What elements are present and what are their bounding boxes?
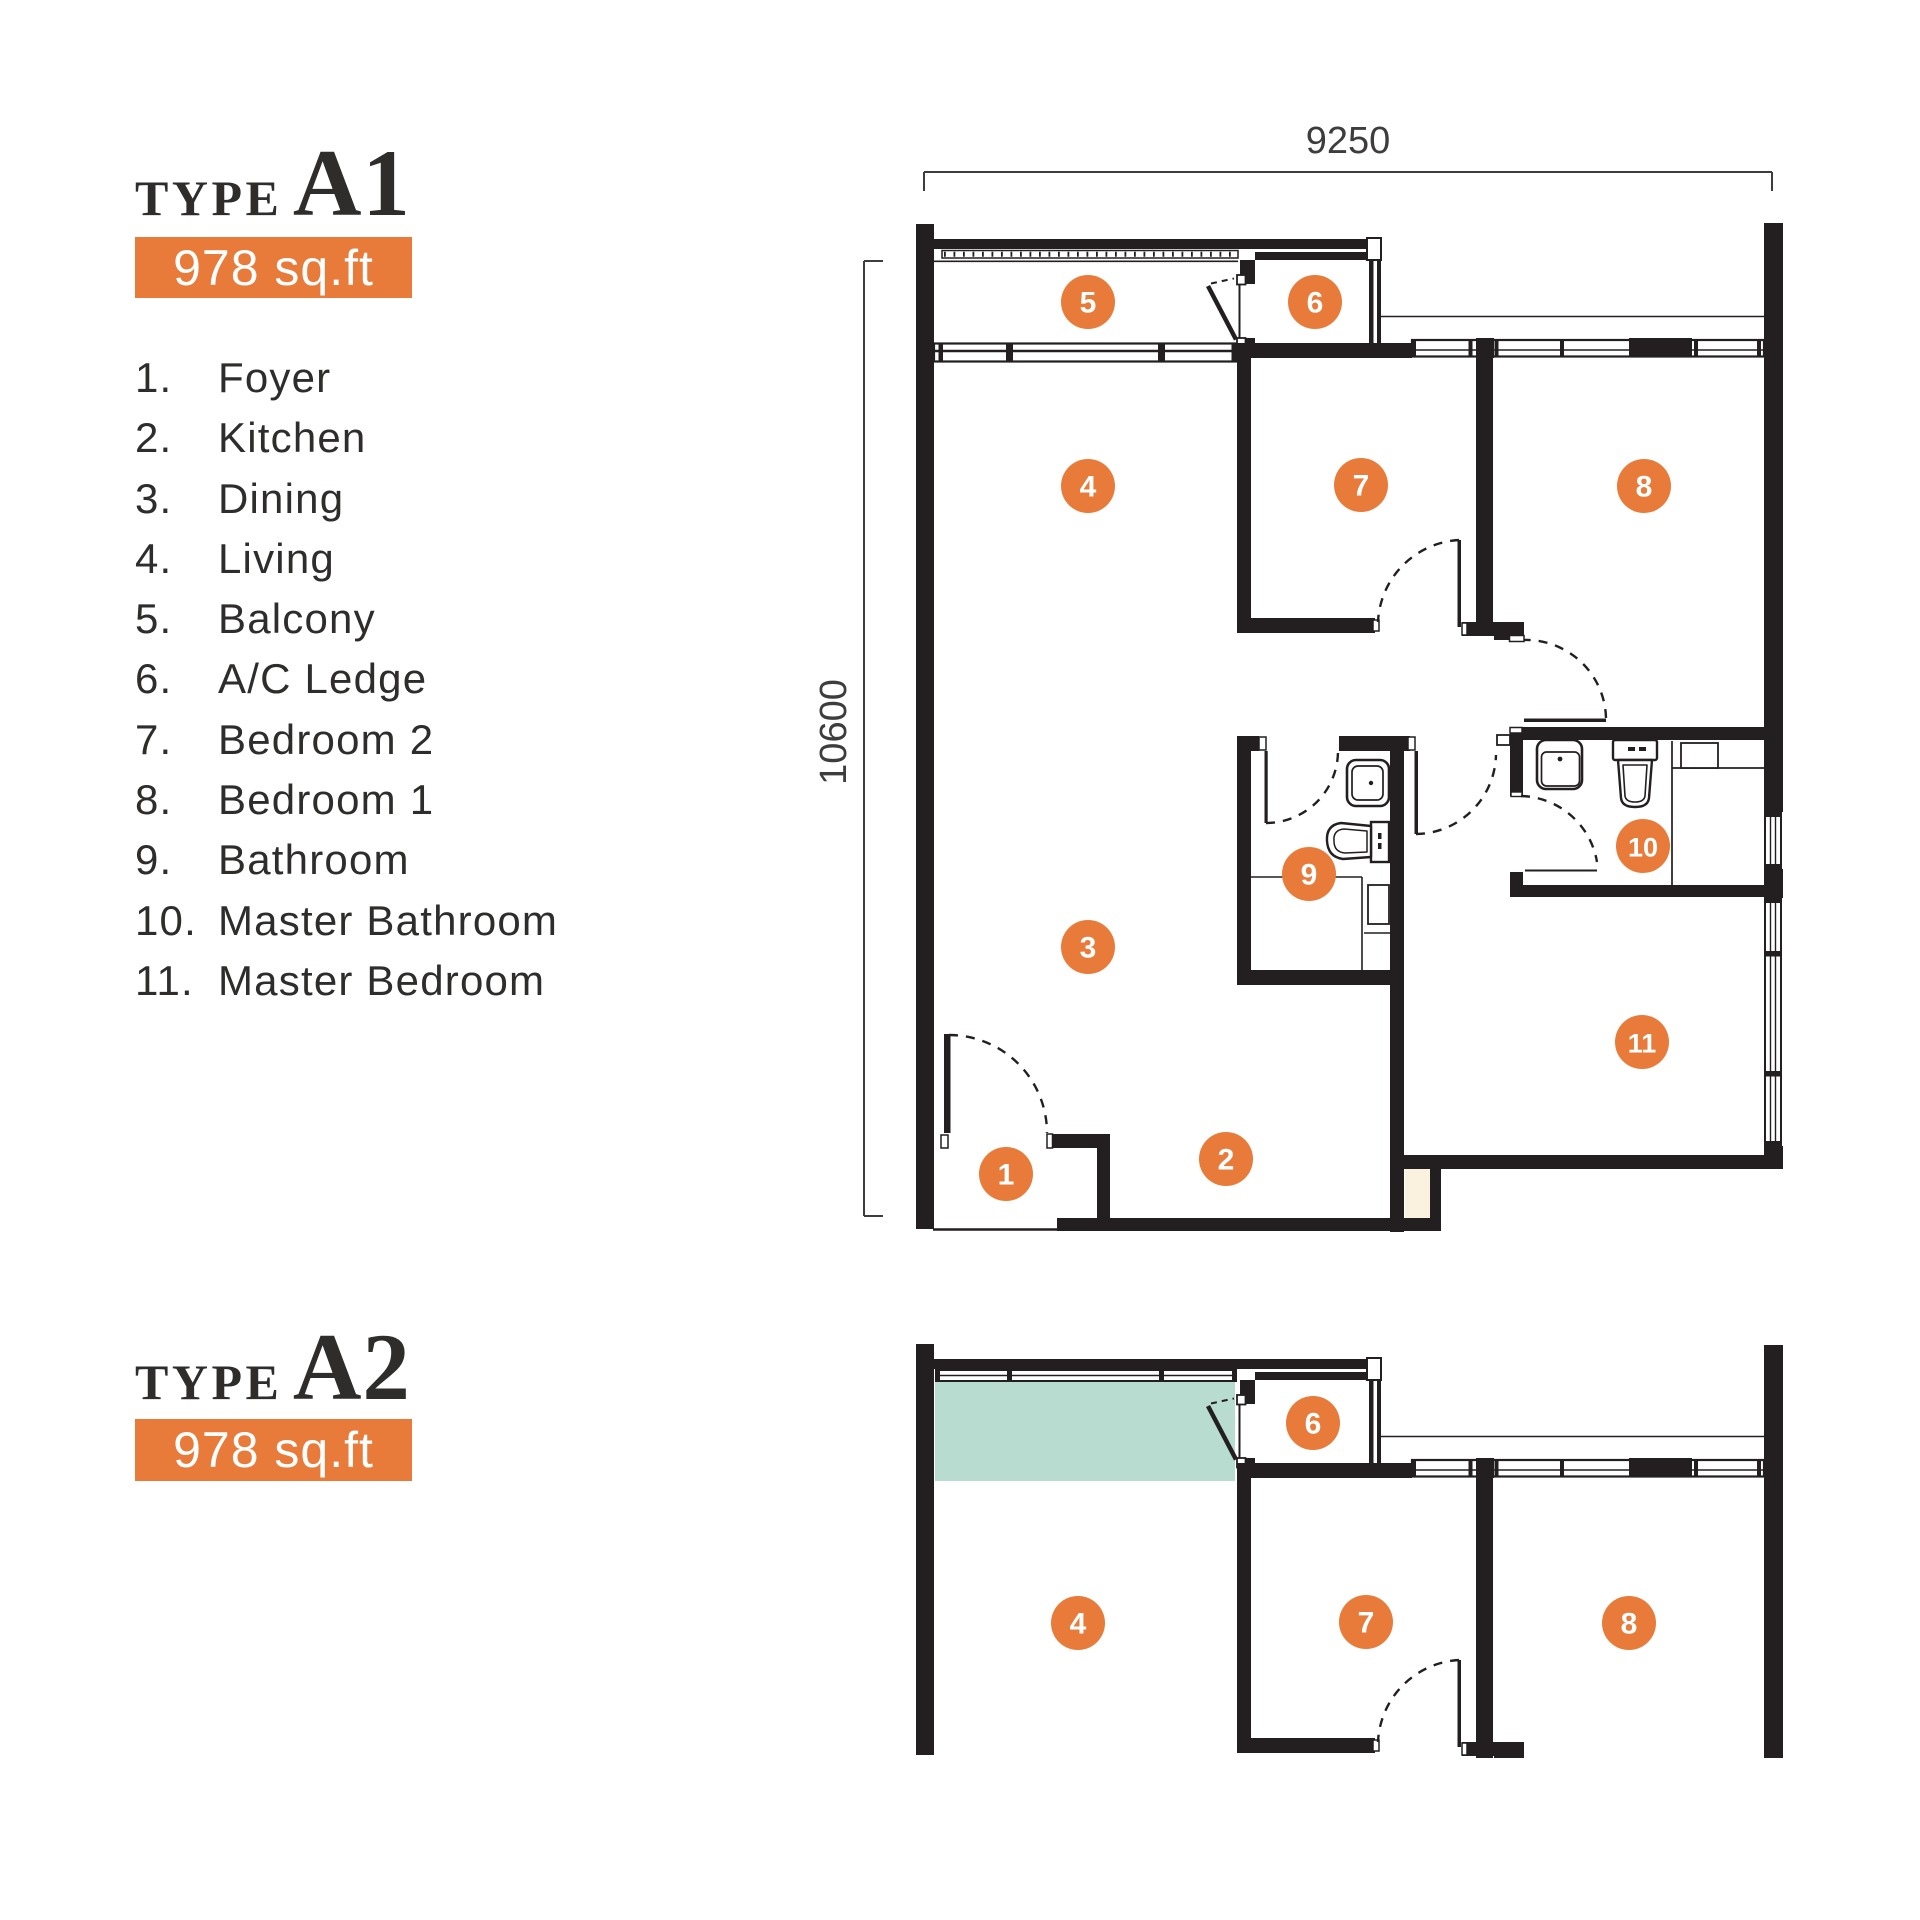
svg-text:9: 9 (1301, 859, 1318, 892)
svg-text:6: 6 (1305, 1408, 1322, 1441)
svg-text:5: 5 (1080, 287, 1097, 320)
svg-text:9250: 9250 (1306, 120, 1391, 162)
svg-text:2: 2 (1218, 1144, 1235, 1177)
svg-text:3: 3 (1080, 932, 1097, 965)
svg-text:11: 11 (1628, 1029, 1657, 1059)
svg-text:8: 8 (1636, 471, 1653, 504)
svg-text:7: 7 (1353, 470, 1370, 503)
svg-text:6: 6 (1307, 287, 1324, 320)
svg-text:4: 4 (1070, 1608, 1087, 1641)
svg-text:7: 7 (1358, 1607, 1375, 1640)
svg-text:10: 10 (1628, 833, 1658, 863)
svg-text:8: 8 (1621, 1608, 1638, 1641)
svg-text:4: 4 (1080, 471, 1097, 504)
svg-text:1: 1 (998, 1159, 1015, 1192)
svg-text:10600: 10600 (813, 679, 855, 785)
